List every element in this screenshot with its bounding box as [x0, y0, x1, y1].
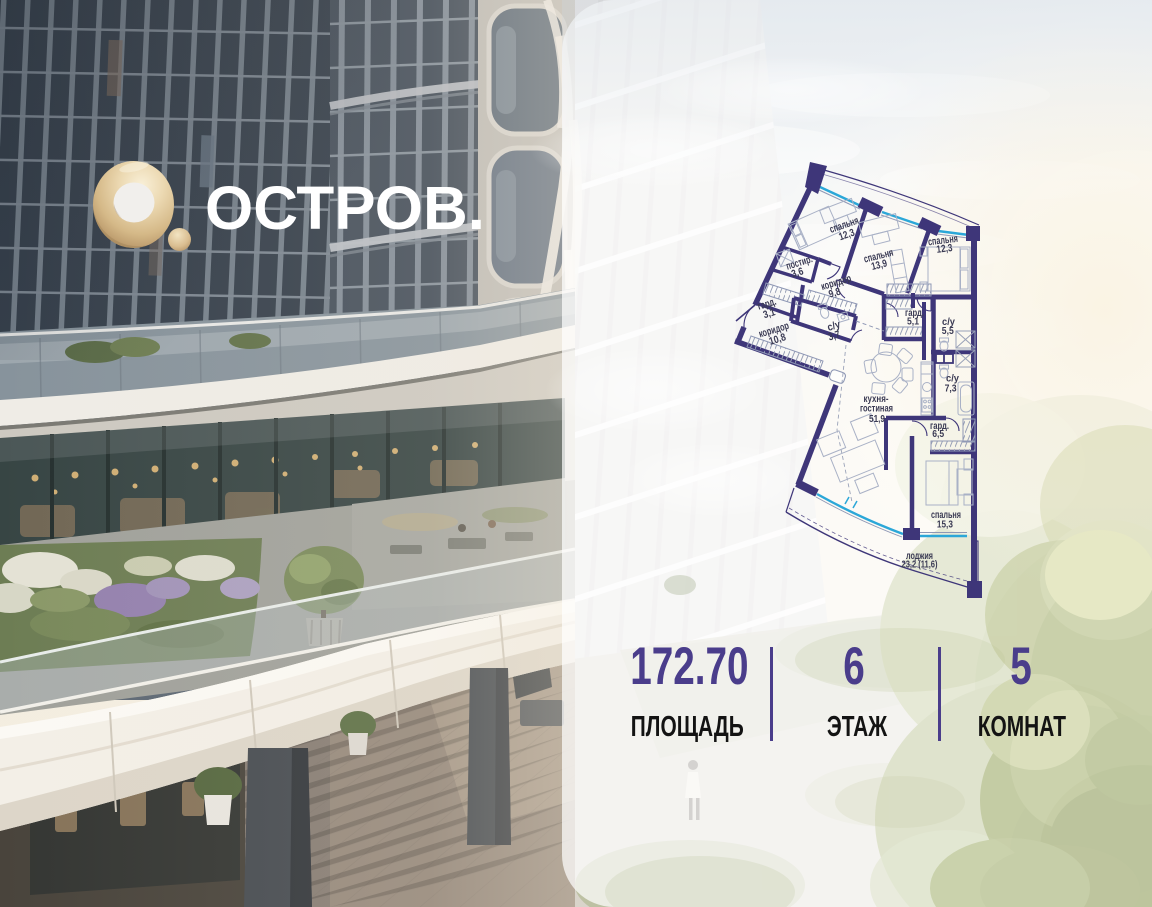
svg-text:5,5: 5,5: [942, 325, 954, 337]
svg-text:23,2 (11,6): 23,2 (11,6): [902, 559, 938, 571]
svg-text:7,3: 7,3: [945, 383, 957, 395]
svg-text:51,9: 51,9: [869, 413, 885, 425]
svg-text:6,5: 6,5: [932, 428, 944, 440]
svg-text:15,3: 15,3: [937, 519, 953, 531]
svg-text:5,1: 5,1: [907, 316, 919, 328]
svg-text:12,3: 12,3: [936, 242, 953, 256]
